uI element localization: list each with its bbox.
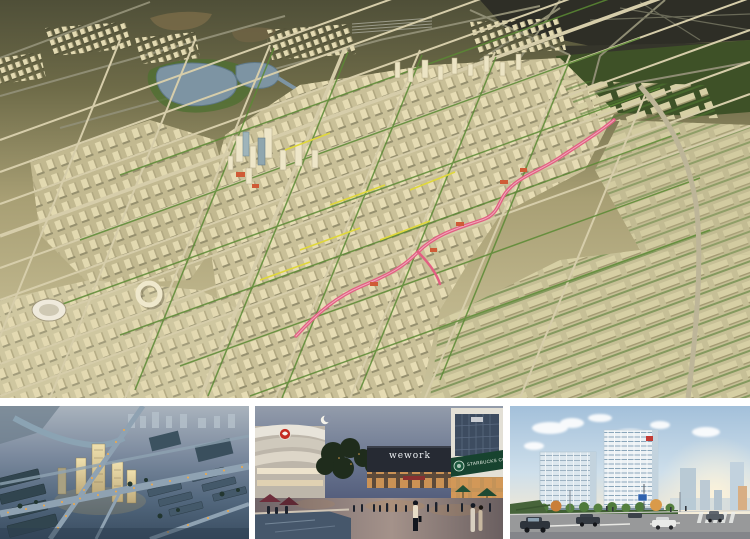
night-aerial-image <box>0 406 249 539</box>
plaza-panel: wework STARBUCKS COFFEE <box>255 406 503 539</box>
night-aerial-panel <box>0 406 249 539</box>
left-building <box>255 424 325 498</box>
rendering-collage: wework STARBUCKS COFFEE <box>0 0 750 539</box>
road-sign <box>638 494 647 501</box>
tower-left <box>540 452 596 512</box>
reflecting-pool <box>255 510 351 539</box>
office-campus-panel <box>510 406 750 539</box>
storefront-banner <box>403 476 425 480</box>
wework-sign: wework <box>389 451 431 461</box>
office-campus-image <box>510 406 750 539</box>
tower-main <box>604 430 658 512</box>
masterplan-aerial-image <box>0 0 750 398</box>
car <box>628 513 642 518</box>
masterplan-aerial-panel <box>0 0 750 398</box>
plaza-image: wework STARBUCKS COFFEE <box>255 406 503 539</box>
tower-logo-sign <box>646 436 653 441</box>
wework-building: wework <box>367 446 453 488</box>
amber-tower <box>738 486 747 510</box>
